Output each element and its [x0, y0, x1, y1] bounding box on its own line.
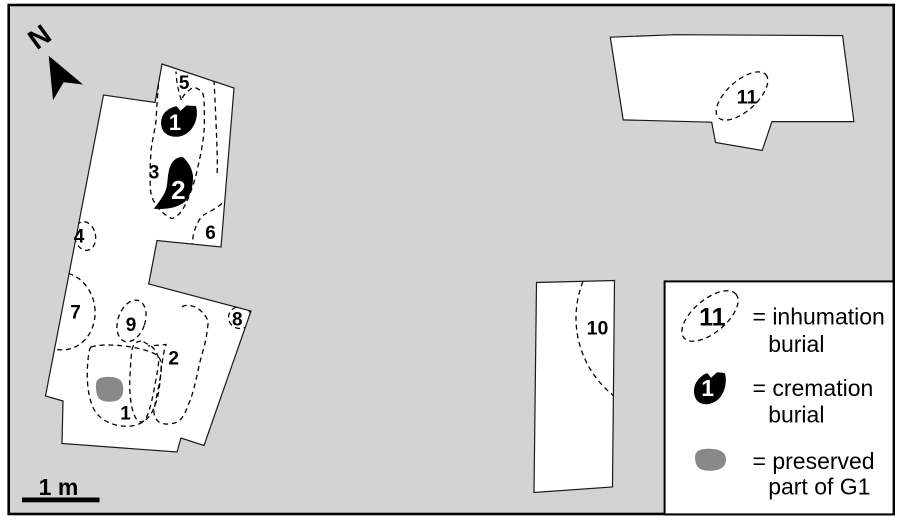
svg-text:11: 11 [699, 304, 726, 332]
svg-text:1: 1 [169, 110, 181, 135]
svg-text:1: 1 [701, 375, 714, 401]
svg-text:7: 7 [70, 303, 81, 324]
svg-text:1: 1 [120, 404, 131, 425]
svg-text:= preserved: = preserved [753, 448, 875, 474]
svg-text:5: 5 [179, 73, 190, 94]
svg-text:= inhumation: = inhumation [753, 304, 885, 330]
svg-text:burial: burial [768, 331, 824, 357]
svg-text:2: 2 [171, 175, 185, 205]
svg-text:= cremation: = cremation [753, 375, 874, 401]
svg-text:8: 8 [232, 310, 243, 331]
svg-text:6: 6 [205, 223, 216, 244]
svg-text:burial: burial [768, 401, 824, 427]
svg-text:4: 4 [74, 227, 85, 248]
svg-text:part of G1: part of G1 [768, 474, 870, 500]
svg-text:10: 10 [587, 318, 609, 340]
svg-text:11: 11 [737, 87, 758, 109]
svg-text:2: 2 [168, 349, 179, 370]
svg-text:3: 3 [149, 163, 160, 184]
svg-text:9: 9 [126, 315, 137, 336]
svg-text:1 m: 1 m [39, 474, 79, 500]
